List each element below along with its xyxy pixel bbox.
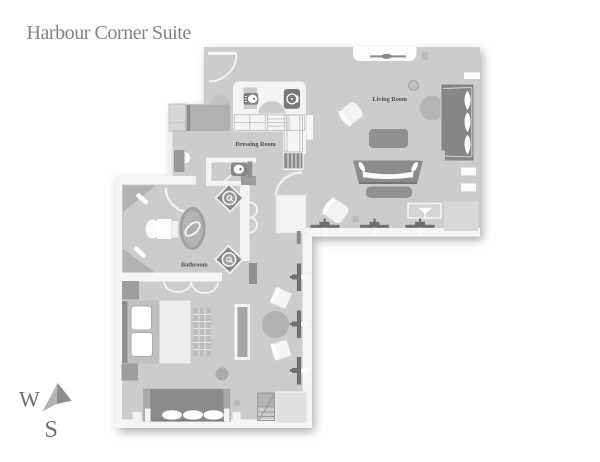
svg-text:W: W (19, 387, 40, 412)
svg-text:Living Room: Living Room (373, 96, 408, 103)
svg-text:Bathroom: Bathroom (181, 262, 209, 269)
svg-text:Dressing Room: Dressing Room (236, 141, 277, 148)
svg-text:S: S (45, 417, 58, 443)
svg-text:Harbour Corner Suite: Harbour Corner Suite (27, 22, 192, 44)
